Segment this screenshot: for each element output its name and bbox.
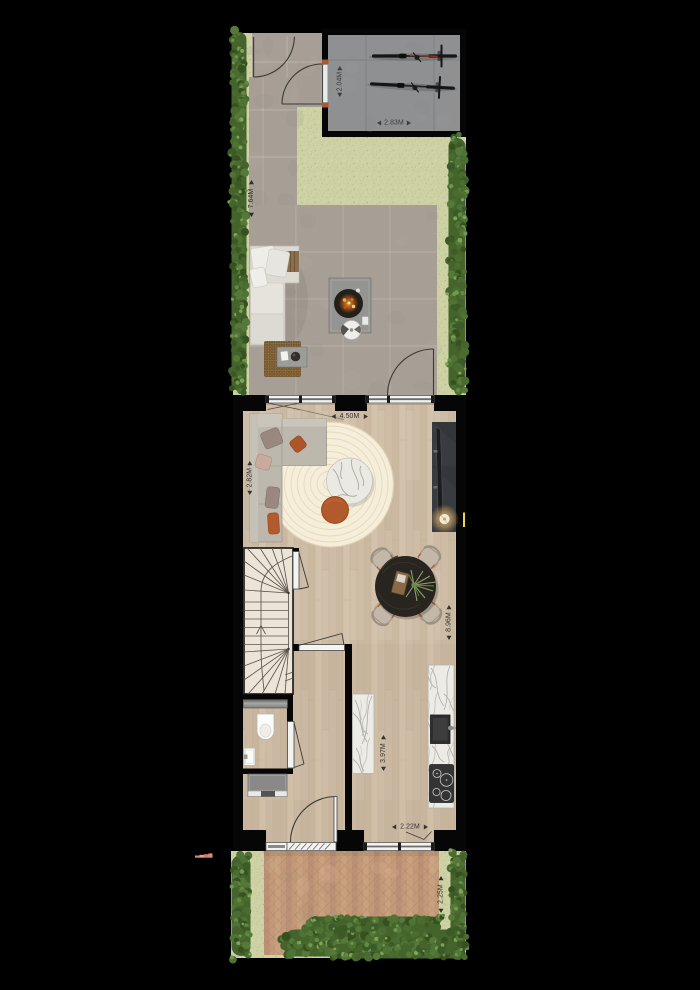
svg-text:3.97M: 3.97M: [380, 743, 387, 763]
svg-text:2.04M: 2.04M: [336, 72, 343, 92]
svg-text:7.64M: 7.64M: [248, 189, 255, 209]
svg-text:2.83M: 2.83M: [384, 120, 404, 127]
svg-text:2.82M: 2.82M: [246, 468, 253, 488]
svg-text:4.50M: 4.50M: [340, 413, 360, 420]
svg-text:8.96M: 8.96M: [446, 612, 453, 632]
svg-text:2.25M: 2.25M: [438, 884, 445, 904]
svg-text:2.22M: 2.22M: [400, 824, 420, 831]
